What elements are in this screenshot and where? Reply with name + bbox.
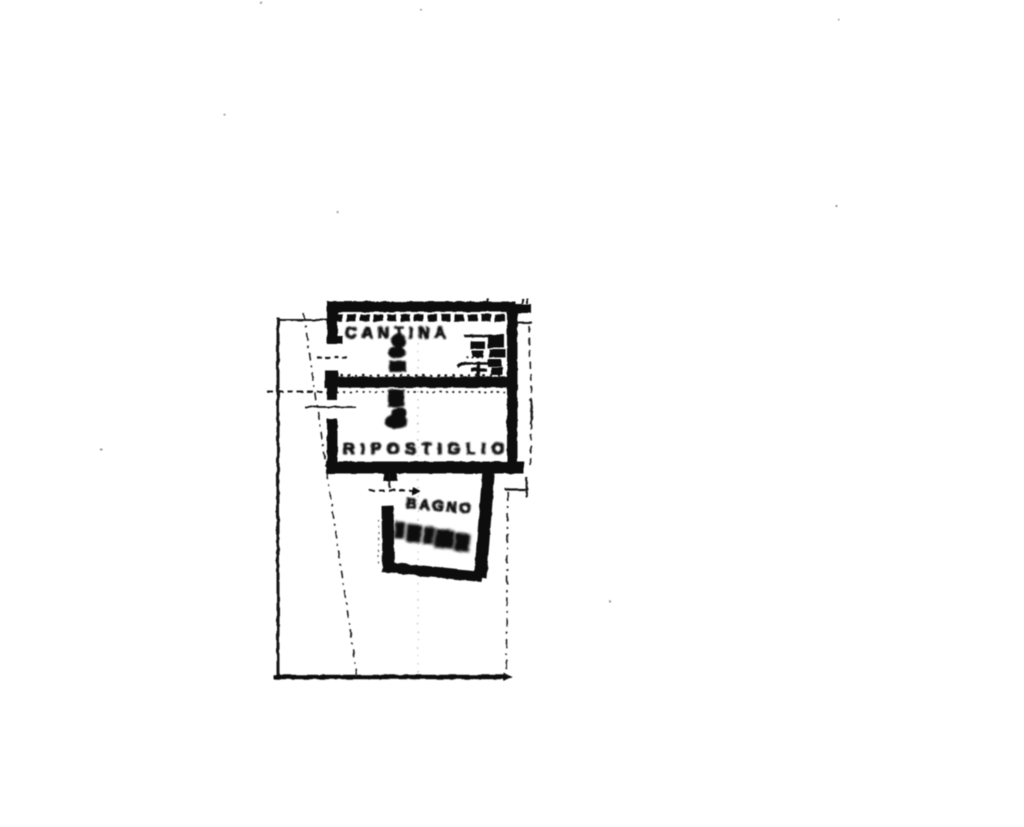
svg-text:BAGNO: BAGNO <box>406 496 474 518</box>
svg-text:RIPOSTIGLIO: RIPOSTIGLIO <box>343 441 510 458</box>
